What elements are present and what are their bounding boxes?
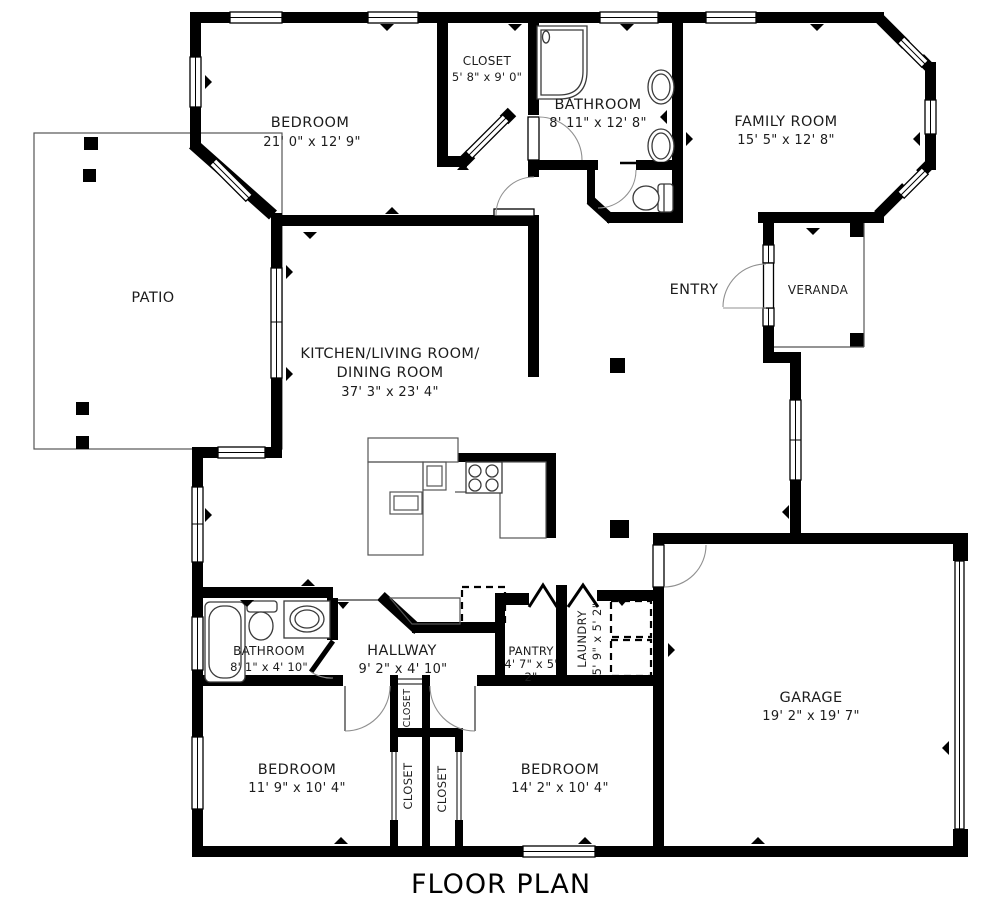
window-diagonal (210, 159, 252, 201)
hall-closet-door (398, 679, 422, 684)
structural-post (610, 520, 629, 538)
label-family-dims: 15' 5" x 12' 8" (737, 133, 834, 148)
veranda-post (850, 223, 864, 237)
window (706, 12, 756, 23)
window-double (192, 487, 203, 562)
wall-kitchen-entry (528, 215, 539, 377)
washer-dashed (611, 601, 651, 637)
wall-top (190, 12, 884, 23)
bedroom1-door (494, 177, 534, 216)
label-bathroom2-name: BATHROOM (233, 644, 305, 658)
label-bedroom1-name: BEDROOM (271, 115, 350, 131)
toilet (247, 601, 277, 640)
sink (284, 601, 330, 638)
label-hallway-name: HALLWAY (367, 643, 437, 659)
label-family-name: FAMILY ROOM (734, 114, 837, 130)
label-bathroom2-dims: 8' 1" x 4' 10" (230, 660, 308, 674)
toilet (633, 184, 673, 212)
window (600, 12, 658, 23)
garage-service-door (653, 545, 706, 587)
shower (537, 26, 587, 99)
garage-corner-post (953, 533, 968, 561)
floor-plan-page: BEDROOM 21' 0" x 12' 9" CLOSET 5' 8" x 9… (0, 0, 1003, 916)
garage-door (955, 561, 964, 829)
patio-post (83, 169, 96, 182)
bathroom2-door (311, 641, 333, 678)
label-garage-dims: 19' 2" x 19' 7" (762, 709, 859, 724)
closet-right-door (457, 752, 461, 820)
dryer-dashed (611, 640, 651, 676)
window-bay-lower (898, 168, 928, 198)
wall-bathroom2-top (203, 587, 333, 598)
label-kitchen-dims: 37' 3" x 23' 4" (341, 385, 438, 400)
label-bedroom2-dims: 11' 9" x 10' 4" (248, 781, 345, 796)
window (218, 447, 265, 458)
garage-corner-post (953, 829, 968, 857)
label-closet1-dims: 5' 8" x 9' 0" (452, 70, 522, 84)
wall-hallcloset-left (390, 675, 398, 737)
label-garage-name: GARAGE (779, 690, 842, 706)
label-bedroom3-name: BEDROOM (521, 762, 600, 778)
closet-left-door (392, 752, 396, 820)
wc-door (598, 170, 636, 208)
label-bathroom1-dims: 8' 11" x 12' 8" (549, 116, 646, 131)
label-entry: ENTRY (670, 282, 719, 298)
label-bedroom3-dims: 14' 2" x 10' 4" (511, 781, 608, 796)
wall-entry-right (763, 221, 774, 245)
window-double (790, 400, 801, 480)
bedroom2-door (345, 686, 390, 731)
wall-closet-middle (422, 737, 430, 847)
wall-garage-left (653, 587, 664, 857)
wall-garage-top (653, 533, 955, 544)
stove (466, 462, 502, 493)
label-patio: PATIO (131, 290, 174, 306)
wall-closet1-left (437, 23, 448, 167)
label-hallway-dims: 9' 2" x 4' 10" (359, 662, 448, 677)
kitchen-sink (390, 492, 422, 514)
label-kitchen-line2: DINING ROOM (336, 365, 443, 381)
window (192, 617, 203, 670)
entry-door (723, 263, 774, 308)
wall-wc-bottom (607, 212, 683, 223)
window (190, 57, 201, 107)
closet1-door (466, 115, 509, 158)
sliding-door-patio (271, 268, 282, 378)
window-sidelight (763, 308, 774, 326)
label-closet-right: CLOSET (435, 765, 449, 813)
wall-familyroom-bottom (758, 212, 884, 223)
label-closet1-name: CLOSET (463, 54, 512, 68)
label-pantry-name: PANTRY (508, 644, 554, 658)
window (230, 12, 282, 23)
window (192, 737, 203, 809)
floor-plan-canvas: BEDROOM 21' 0" x 12' 9" CLOSET 5' 8" x 9… (0, 0, 1003, 916)
label-closet-hall: CLOSET (402, 689, 413, 728)
pantry-door (529, 585, 557, 607)
label-laundry-dims: 5' 9" x 5' 2" (590, 603, 604, 676)
label-bedroom2-name: BEDROOM (258, 762, 337, 778)
label-pantry-dims2: 2" (524, 670, 537, 684)
wall-hallcloset-right (422, 675, 430, 737)
label-bathroom1-name: BATHROOM (554, 97, 641, 113)
label-laundry-name: LAUNDRY (575, 610, 589, 668)
sink (620, 129, 674, 163)
patio-post (84, 137, 98, 150)
wall-below-veranda (790, 352, 801, 400)
window (368, 12, 418, 23)
window-sidelight (763, 245, 774, 263)
label-closet-left: CLOSET (401, 762, 415, 810)
label-veranda: VERANDA (788, 283, 849, 297)
wall-bathroom1-right (672, 23, 683, 223)
bedroom3-door (430, 686, 475, 731)
label-bedroom1-dims: 21' 0" x 12' 9" (263, 135, 360, 150)
patio-post (76, 436, 89, 449)
label-pantry-dims1: 4' 7" x 5' (504, 657, 557, 671)
window-bay-center (925, 100, 936, 134)
patio-post (76, 402, 89, 415)
window-bay-upper (898, 37, 928, 67)
plan-title: FLOOR PLAN (411, 869, 591, 900)
structural-post (610, 358, 625, 373)
label-kitchen-line1: KITCHEN/LIVING ROOM/ (300, 346, 479, 362)
veranda-post (850, 333, 864, 347)
window (523, 846, 595, 857)
sink (648, 70, 674, 104)
wall-kitchen-counter (458, 453, 555, 462)
